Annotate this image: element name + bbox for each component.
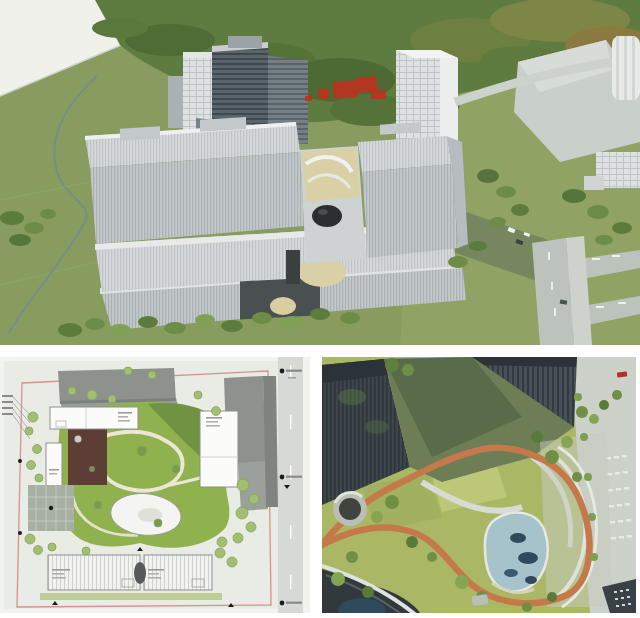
site-plan-graphic — [0, 357, 310, 613]
white-cube-tower — [396, 50, 458, 152]
garden-dot — [75, 436, 82, 443]
podium-beige-circle — [270, 297, 296, 315]
east-building — [200, 411, 238, 487]
brown-garden — [68, 429, 107, 485]
courtyard-render-panel — [322, 357, 636, 613]
sports-court — [28, 485, 74, 531]
site-plan-panel — [0, 357, 310, 613]
sunken-plaza — [333, 492, 367, 526]
left-slab-tower — [85, 117, 304, 244]
main-complex — [85, 117, 468, 330]
northwest-building — [50, 407, 138, 429]
aerial-render-panel — [0, 0, 640, 345]
pond — [485, 513, 548, 593]
garden-dot2 — [89, 466, 95, 472]
gap-shadow — [286, 250, 300, 284]
road-strip-east — [278, 357, 303, 613]
ramp-oval — [134, 562, 146, 584]
aerial-render-graphic — [0, 0, 640, 345]
central-terrace — [300, 146, 366, 264]
courtyard-render-graphic — [322, 357, 636, 613]
collage-stage — [0, 0, 640, 618]
dark-dome — [312, 205, 342, 227]
right-slab-tower — [358, 122, 468, 258]
west-building — [46, 443, 62, 487]
